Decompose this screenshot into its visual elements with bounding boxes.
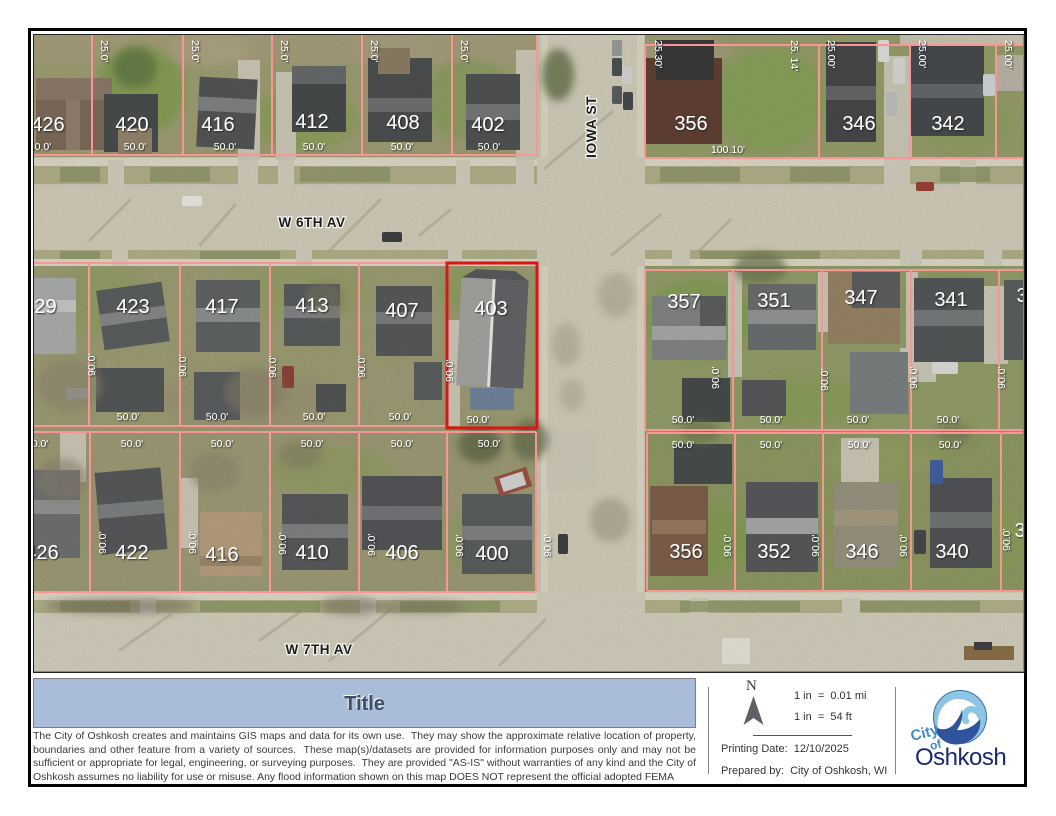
svg-text:25.00': 25.00' — [916, 40, 928, 68]
svg-text:407: 407 — [385, 300, 418, 322]
svg-text:25.0': 25.0' — [278, 40, 290, 62]
svg-text:416: 416 — [205, 544, 238, 566]
svg-text:50.0': 50.0' — [672, 439, 694, 451]
svg-text:25.0': 25.0' — [98, 40, 110, 62]
svg-text:100.10': 100.10' — [711, 144, 745, 156]
svg-text:402: 402 — [471, 114, 504, 136]
svg-text:50.0': 50.0' — [478, 438, 500, 450]
svg-text:90.0': 90.0' — [722, 535, 734, 557]
svg-text:50.0': 50.0' — [672, 414, 694, 426]
svg-text:346: 346 — [845, 541, 878, 563]
svg-text:347: 347 — [844, 287, 877, 309]
svg-text:50.0': 50.0' — [467, 414, 489, 426]
svg-text:50.0': 50.0' — [760, 414, 782, 426]
svg-text:90.0': 90.0' — [819, 369, 831, 391]
svg-text:50.0': 50.0' — [391, 141, 413, 153]
svg-text:90.0': 90.0' — [267, 356, 279, 378]
svg-text:50.0': 50.0' — [214, 141, 236, 153]
svg-text:25.00': 25.00' — [1002, 40, 1014, 68]
svg-text:429: 429 — [34, 296, 57, 318]
svg-text:90.0': 90.0' — [444, 360, 456, 382]
svg-text:50.0': 50.0' — [301, 438, 323, 450]
svg-text:346: 346 — [842, 113, 875, 135]
svg-text:50.0': 50.0' — [303, 411, 325, 423]
svg-text:90.0': 90.0' — [187, 532, 199, 554]
svg-text:341: 341 — [934, 289, 967, 311]
svg-text:413: 413 — [295, 295, 328, 317]
svg-text:25.0': 25.0' — [368, 40, 380, 62]
svg-text:90.0': 90.0' — [356, 356, 368, 378]
svg-text:3: 3 — [1016, 285, 1023, 307]
svg-text:423: 423 — [116, 296, 149, 318]
svg-text:50.0': 50.0' — [117, 411, 139, 423]
svg-text:420: 420 — [115, 114, 148, 136]
svg-text:Oshkosh: Oshkosh — [915, 744, 1006, 771]
svg-text:50.0': 50.0' — [478, 141, 500, 153]
svg-text:426: 426 — [34, 114, 65, 136]
svg-text:351: 351 — [757, 290, 790, 312]
svg-text:50.0': 50.0' — [937, 414, 959, 426]
svg-text:25.0': 25.0' — [189, 40, 201, 62]
svg-text:90.0': 90.0' — [97, 532, 109, 554]
svg-text:90.0': 90.0' — [542, 535, 554, 557]
svg-text:340: 340 — [935, 541, 968, 563]
svg-text:410: 410 — [295, 542, 328, 564]
svg-text:90.0': 90.0' — [908, 367, 920, 389]
svg-text:422: 422 — [115, 542, 148, 564]
svg-text:3: 3 — [1014, 520, 1023, 542]
svg-text:90.0': 90.0' — [366, 534, 378, 556]
svg-text:342: 342 — [931, 113, 964, 135]
svg-text:400: 400 — [475, 543, 508, 565]
svg-text:50.0': 50.0' — [124, 141, 146, 153]
svg-text:90.0': 90.0' — [1001, 529, 1013, 551]
svg-text:356: 356 — [669, 541, 702, 563]
svg-text:356: 356 — [674, 113, 707, 135]
svg-text:90.0': 90.0' — [177, 355, 189, 377]
svg-text:25. 14': 25. 14' — [788, 40, 800, 71]
svg-text:90.0': 90.0' — [454, 535, 466, 557]
svg-text:25.00': 25.00' — [825, 40, 837, 68]
svg-text:352: 352 — [757, 541, 790, 563]
svg-text:IOWA ST: IOWA ST — [583, 96, 599, 158]
svg-text:W 6TH AV: W 6TH AV — [279, 215, 346, 230]
svg-text:90.0': 90.0' — [710, 367, 722, 389]
svg-text:25.30': 25.30' — [652, 40, 664, 68]
svg-text:50.0': 50.0' — [303, 141, 325, 153]
svg-text:50.0': 50.0' — [391, 438, 413, 450]
svg-text:50.0': 50.0' — [848, 439, 870, 451]
svg-text:403: 403 — [474, 298, 507, 320]
svg-text:50.0': 50.0' — [34, 141, 51, 153]
svg-text:357: 357 — [667, 291, 700, 313]
svg-text:50.0': 50.0' — [206, 411, 228, 423]
svg-text:426: 426 — [34, 542, 59, 564]
svg-text:0.0': 0.0' — [34, 438, 48, 450]
svg-text:90.0': 90.0' — [810, 535, 822, 557]
svg-text:50.0': 50.0' — [211, 438, 233, 450]
svg-text:50.0': 50.0' — [121, 438, 143, 450]
svg-text:50.0': 50.0' — [847, 414, 869, 426]
svg-text:412: 412 — [295, 111, 328, 133]
svg-text:50.0': 50.0' — [389, 411, 411, 423]
svg-text:417: 417 — [205, 296, 238, 318]
svg-text:90.0': 90.0' — [277, 533, 289, 555]
svg-text:416: 416 — [201, 114, 234, 136]
svg-text:90.0': 90.0' — [996, 367, 1008, 389]
svg-text:50.0': 50.0' — [760, 439, 782, 451]
svg-text:90.0': 90.0' — [898, 535, 910, 557]
svg-text:25.0': 25.0' — [458, 40, 470, 62]
svg-text:W 7TH AV: W 7TH AV — [286, 642, 353, 657]
svg-text:50.0': 50.0' — [939, 439, 961, 451]
svg-text:406: 406 — [385, 542, 418, 564]
svg-text:90.0': 90.0' — [86, 354, 98, 376]
svg-text:408: 408 — [386, 112, 419, 134]
